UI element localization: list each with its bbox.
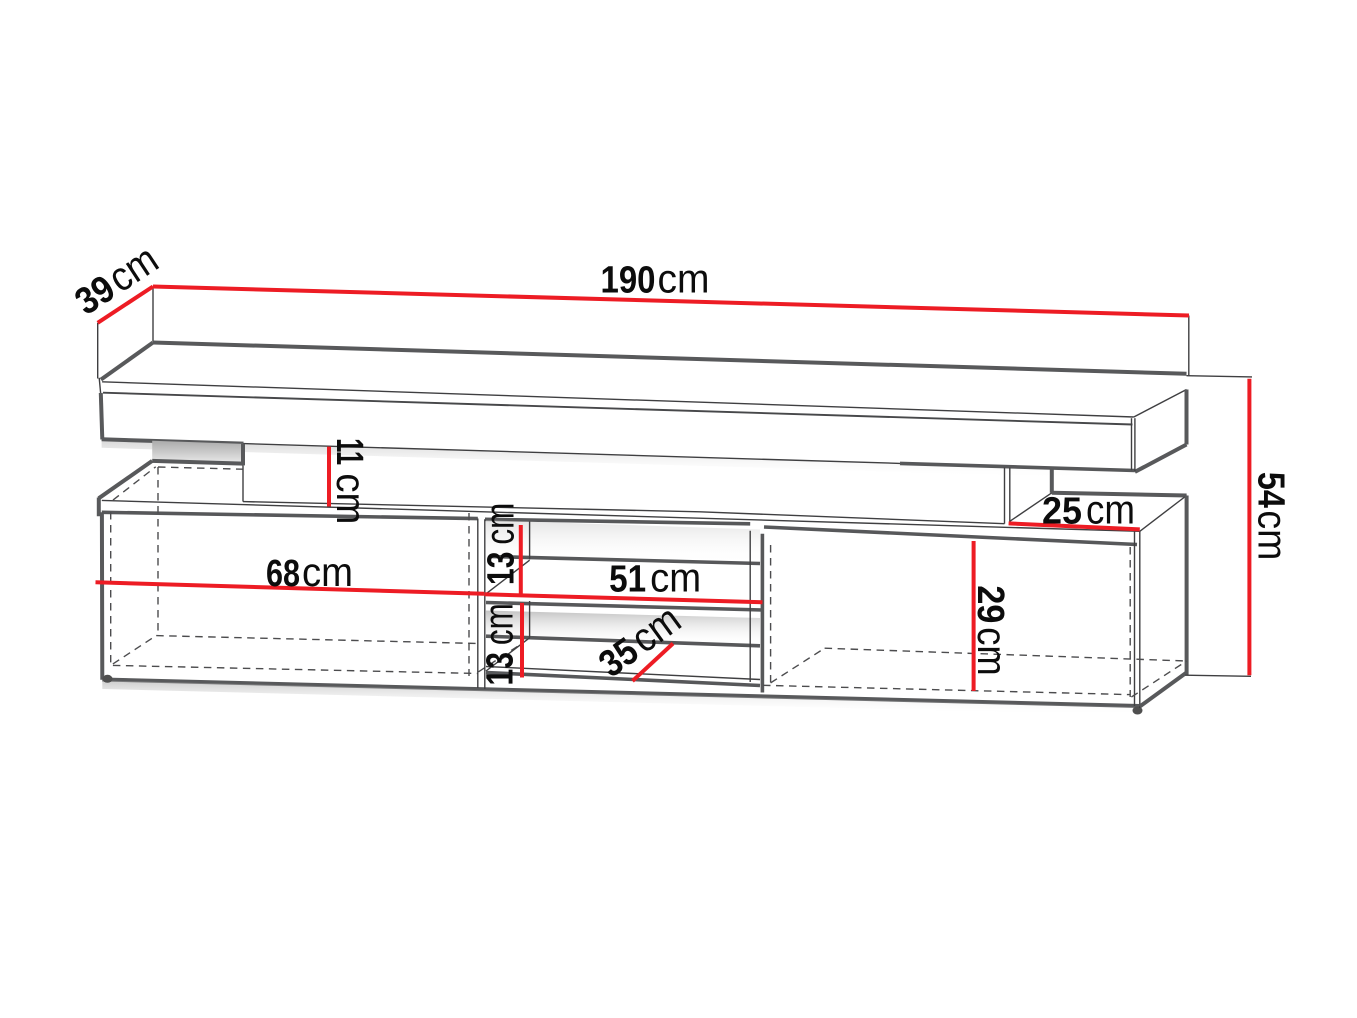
svg-text:cm: cm: [650, 555, 701, 601]
svg-text:cm: cm: [476, 603, 522, 645]
svg-text:13: 13: [480, 652, 522, 686]
svg-text:51: 51: [609, 559, 646, 601]
svg-text:cm: cm: [328, 473, 374, 524]
svg-text:cm: cm: [969, 627, 1015, 676]
svg-text:68: 68: [266, 553, 300, 595]
svg-text:cm: cm: [477, 503, 523, 545]
svg-text:29: 29: [969, 585, 1011, 623]
svg-text:25: 25: [1042, 491, 1082, 533]
svg-text:190: 190: [601, 260, 656, 302]
svg-text:cm: cm: [1086, 487, 1135, 533]
svg-text:13: 13: [481, 552, 523, 586]
svg-text:cm: cm: [1250, 510, 1296, 560]
svg-text:54: 54: [1250, 472, 1292, 508]
svg-text:cm: cm: [302, 549, 353, 595]
svg-text:11: 11: [328, 438, 370, 465]
svg-text:cm: cm: [658, 256, 710, 302]
